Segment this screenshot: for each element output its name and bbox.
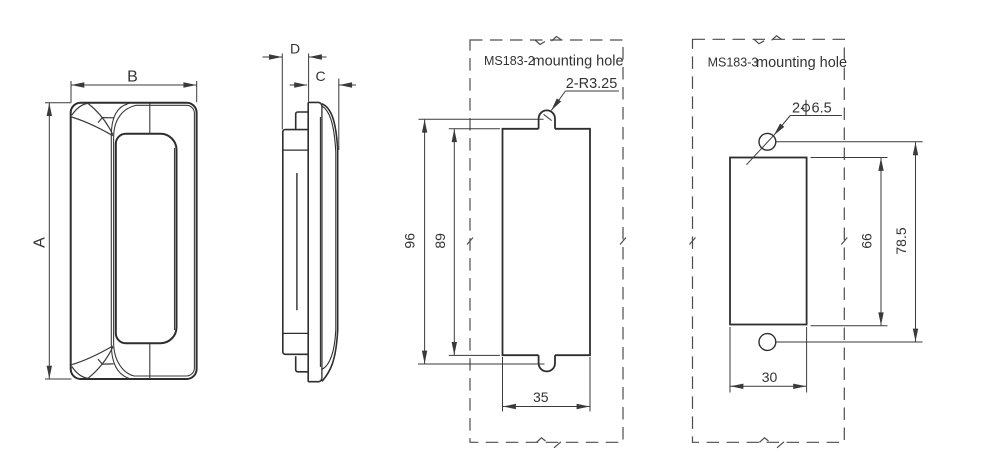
svg-text:2-R3.25: 2-R3.25 [566,76,618,92]
svg-text:6.5: 6.5 [812,101,832,117]
svg-text:MS183-3: MS183-3 [708,56,759,70]
svg-text:89: 89 [432,233,448,249]
svg-text:C: C [315,68,325,84]
svg-text:mounting hole: mounting hole [533,54,624,70]
svg-text:B: B [127,69,138,86]
svg-text:mounting hole: mounting hole [756,55,847,71]
svg-text:96: 96 [402,233,418,249]
svg-text:78.5: 78.5 [893,227,909,254]
svg-text:A: A [32,237,49,248]
svg-text:30: 30 [762,369,778,385]
svg-text:66: 66 [859,233,875,249]
svg-text:35: 35 [533,389,549,405]
svg-text:D: D [290,41,300,57]
svg-text:MS183-2: MS183-2 [484,54,535,68]
